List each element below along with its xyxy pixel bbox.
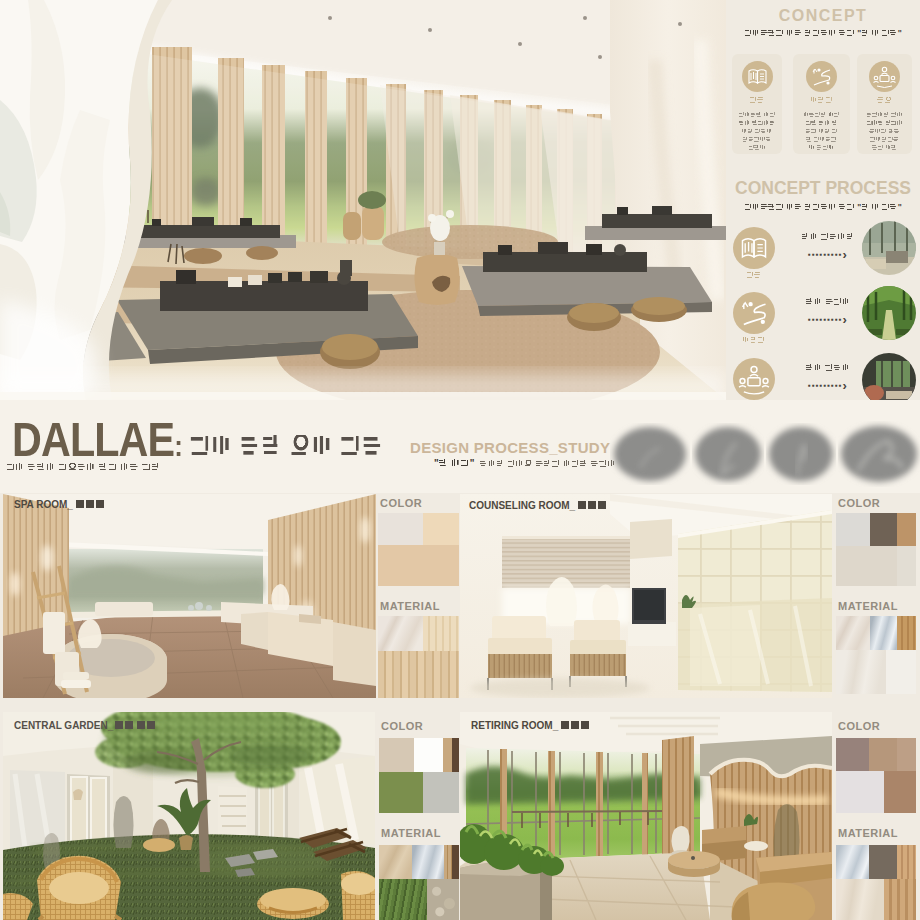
svg-text:SPA ROOM_: SPA ROOM_ (14, 499, 73, 510)
svg-text:CENTRAL GARDEN_: CENTRAL GARDEN_ (14, 720, 114, 731)
svg-text:COUNSELING ROOM_: COUNSELING ROOM_ (469, 500, 576, 511)
svg-text:RETIRING ROOM_: RETIRING ROOM_ (471, 720, 559, 731)
